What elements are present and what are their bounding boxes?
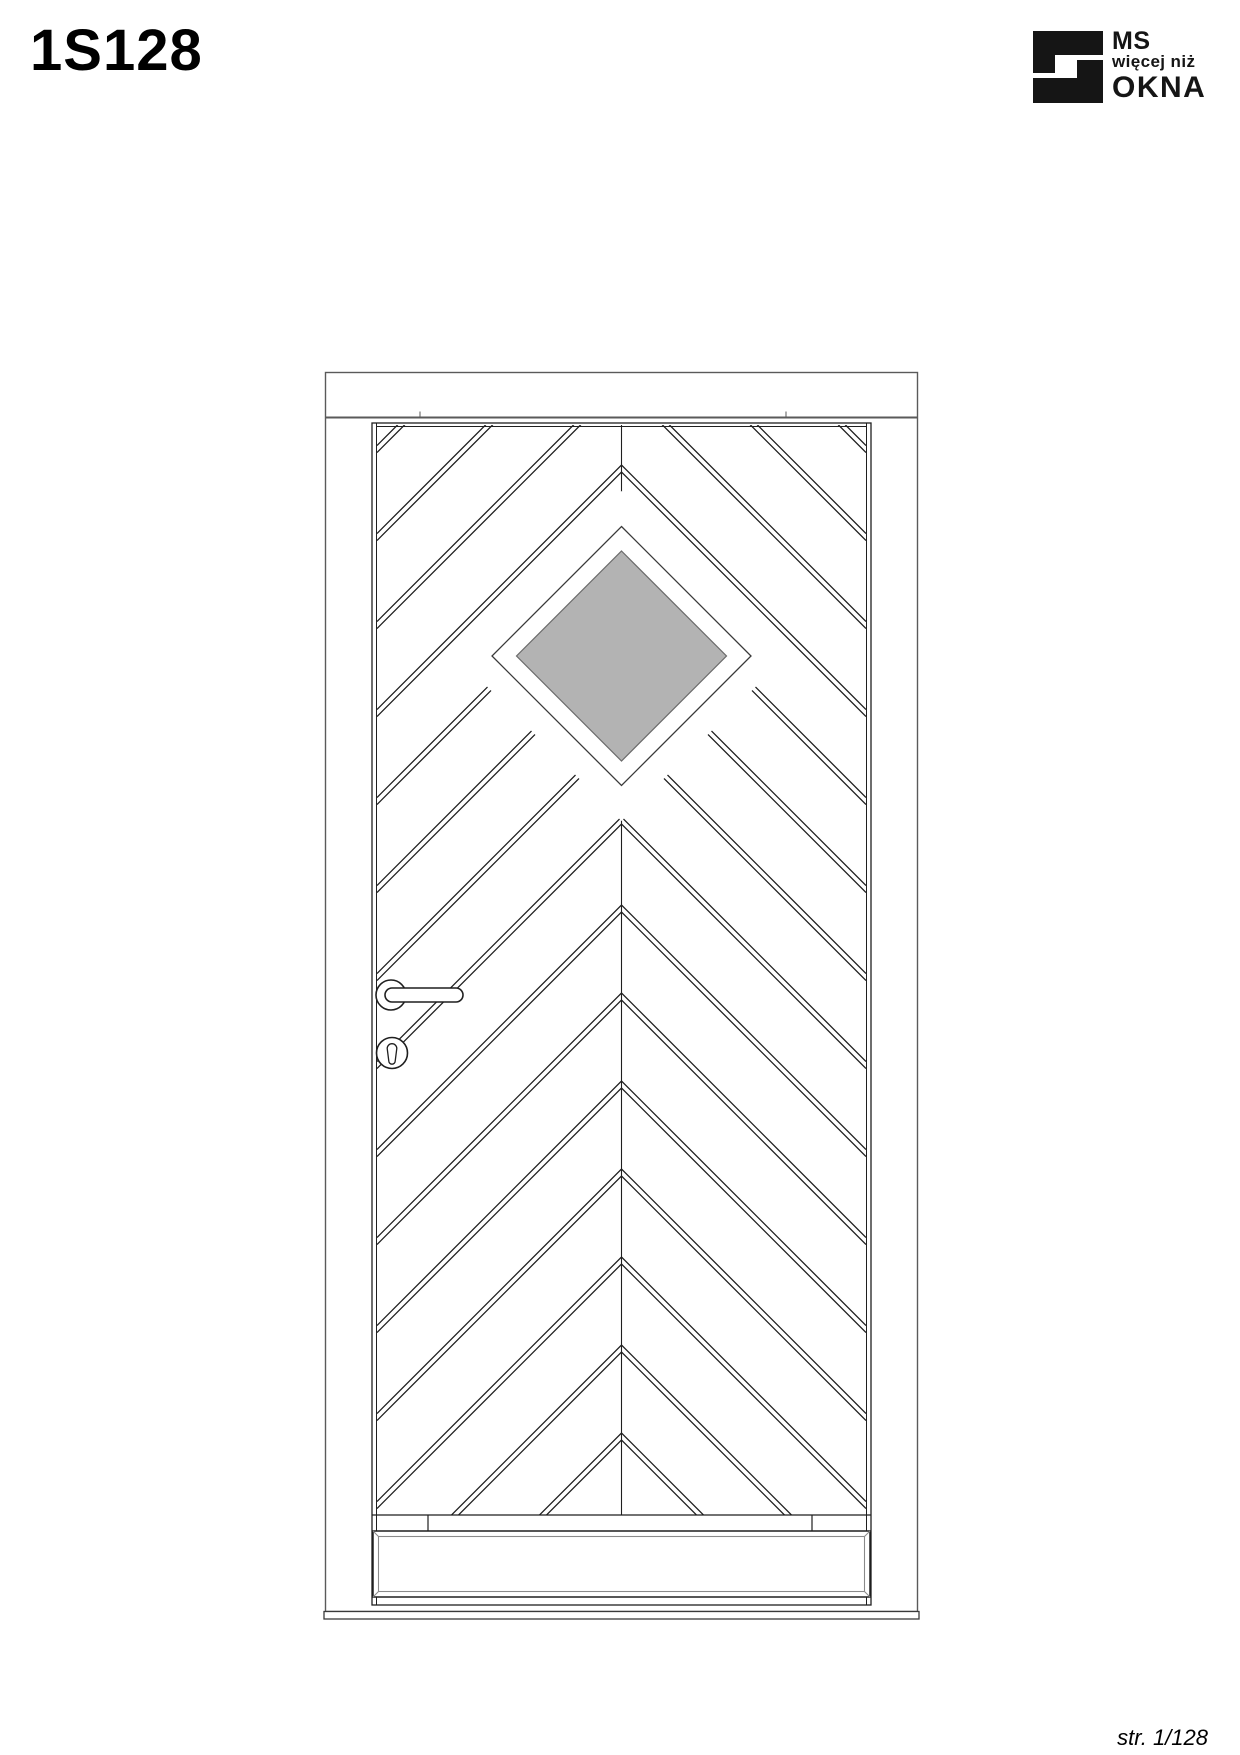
keyhole <box>377 1038 408 1069</box>
chevron-cladding <box>377 201 866 1755</box>
keyhole-slot-icon <box>387 1044 397 1065</box>
threshold-sill <box>324 1612 919 1620</box>
door-drawing <box>0 0 1240 1755</box>
kick-panel <box>373 1515 870 1597</box>
catalog-page: 1S128 MS więcej niż OKNA str. 1/128 <box>0 0 1240 1755</box>
diamond-glass <box>517 551 727 761</box>
diamond-window <box>492 527 751 786</box>
door-handle <box>376 980 463 1010</box>
page-number: str. 1/128 <box>1117 1725 1208 1751</box>
